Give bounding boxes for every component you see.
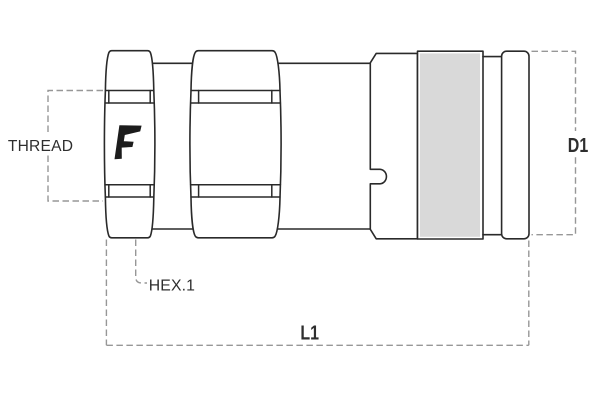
svg-text:THREAD: THREAD bbox=[8, 138, 73, 155]
svg-text:HEX.1: HEX.1 bbox=[149, 278, 195, 295]
svg-text:D1: D1 bbox=[568, 133, 588, 156]
svg-text:L1: L1 bbox=[300, 321, 319, 344]
